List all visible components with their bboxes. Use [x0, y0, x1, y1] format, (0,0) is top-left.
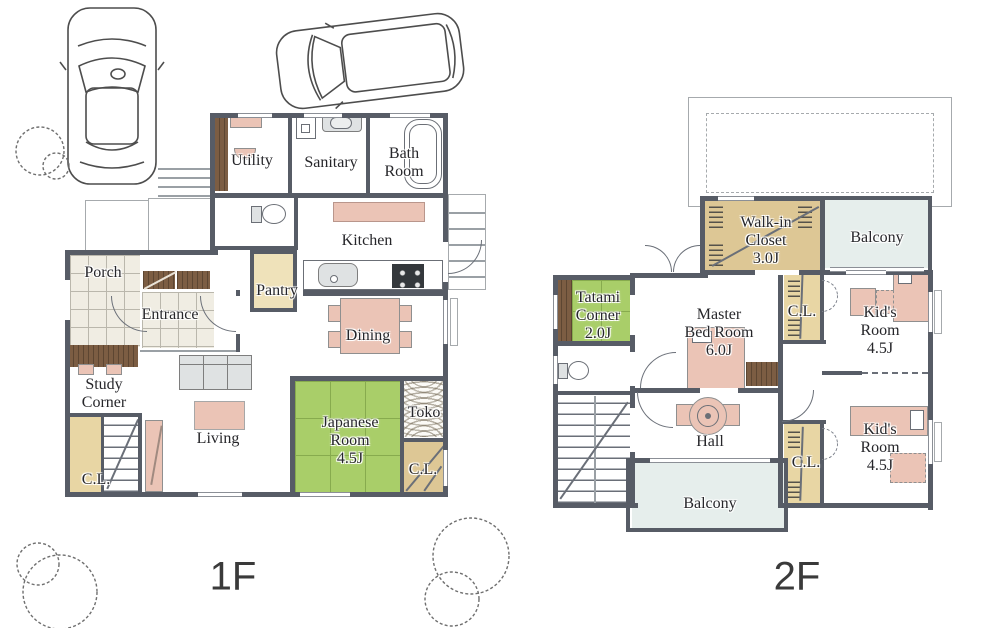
shoe-cabinet [177, 271, 210, 289]
wall-segment [825, 196, 932, 200]
folding-door-arc [822, 444, 838, 460]
room-label-sanitary: Sanitary [304, 154, 357, 172]
dining-chair [399, 331, 412, 348]
room-label-hall: Hall [696, 433, 724, 451]
window [928, 292, 933, 332]
room-label-walk-in-closet: Walk-in Closet 3.0J [740, 214, 791, 268]
window-shutter-box [934, 422, 942, 462]
step-line [158, 186, 215, 188]
wall-segment [250, 308, 297, 312]
step-line [158, 177, 215, 179]
door-opening [236, 296, 240, 334]
wall-segment [303, 290, 443, 296]
window [198, 492, 242, 497]
step-line [158, 168, 215, 170]
floor-step-line [140, 350, 238, 352]
door-opening [630, 295, 635, 335]
bed-pillow [898, 274, 912, 284]
room-label-dining: Dining [346, 327, 390, 345]
wall-segment [783, 503, 933, 508]
door-arc [782, 390, 814, 422]
tatami-corner-shelf [556, 280, 572, 341]
wall-segment [210, 113, 215, 255]
stove-icon [392, 264, 424, 288]
wall-segment [366, 113, 370, 198]
sanitary-cabinet-knob [301, 124, 310, 133]
window [553, 295, 558, 329]
room-label-balcony-bottom: Balcony [683, 495, 736, 513]
wall-segment [553, 391, 633, 395]
room-label-closet-right: C.L. [409, 461, 437, 479]
room-label-balcony-top: Balcony [850, 229, 903, 247]
step-line [158, 195, 215, 197]
floor-2-label: 2F [774, 555, 821, 600]
window [846, 270, 886, 275]
balcony-window [650, 458, 770, 463]
window [304, 113, 342, 118]
window [928, 420, 933, 464]
wall-segment [553, 275, 633, 280]
living-rug [194, 401, 245, 430]
door-arc [640, 352, 676, 388]
room-label-closet-lower: C.L. [792, 454, 820, 472]
wall-segment [778, 270, 783, 392]
door-arc [645, 245, 672, 272]
wall-segment [290, 376, 295, 497]
hanger-pipe-icon [788, 478, 800, 498]
wall-segment [290, 376, 448, 381]
utility-shelf [214, 117, 228, 191]
step-line [449, 228, 485, 230]
hanger-pipe-icon [788, 428, 800, 448]
hall-round-table-dot [705, 413, 711, 419]
kitchen-mat [333, 202, 425, 222]
floor-2-plan: Walk-in Closet 3.0J Balcony Tatami Corne… [500, 0, 1000, 628]
wall-segment [630, 273, 708, 278]
window [443, 450, 448, 486]
toilet-icon [251, 206, 262, 223]
wall-segment [294, 193, 298, 250]
room-label-study-corner: Study Corner [82, 376, 126, 412]
door-arc [637, 392, 673, 428]
balcony-rail [784, 458, 788, 532]
floor-1-label: 1F [210, 555, 257, 600]
wall-segment [65, 250, 218, 255]
room-label-closet-upper: C.L. [788, 303, 816, 321]
kitchen-sink [318, 263, 358, 287]
window [300, 492, 350, 497]
hanger-pipe-icon [709, 204, 723, 228]
wall-segment [700, 196, 705, 275]
folding-door-arc [822, 280, 838, 296]
dining-chair [328, 331, 341, 348]
dresser [746, 362, 782, 386]
room-label-pantry: Pantry [256, 282, 298, 300]
room-label-kids-room-lower: Kid's Room 4.5J [860, 421, 899, 475]
room-label-kids-room-upper: Kid's Room 4.5J [860, 304, 899, 358]
wall-segment [250, 250, 297, 254]
door-arc [673, 245, 700, 272]
room-label-utility: Utility [231, 152, 273, 170]
wash-basin-bowl [330, 117, 352, 129]
dining-chair [399, 305, 412, 322]
room-label-kitchen: Kitchen [342, 232, 393, 250]
window [238, 113, 272, 118]
window-shutter-box [450, 298, 458, 346]
door-opening [755, 270, 799, 275]
bed-pillow [910, 410, 924, 430]
room-label-entrance: Entrance [142, 306, 199, 324]
room-label-toko: Toko [408, 404, 441, 422]
toilet-icon [558, 363, 568, 379]
window [553, 356, 558, 384]
hanger-pipe-icon [788, 277, 800, 297]
roof-dashed-line [706, 113, 934, 193]
room-label-japanese-room: Japanese Room 4.5J [322, 414, 379, 468]
balcony-rail [626, 458, 630, 532]
folding-door-arc [822, 296, 838, 312]
wall-segment [778, 340, 826, 344]
wall-segment [822, 371, 862, 375]
room-label-closet-left: C.L. [82, 471, 110, 489]
door-opening [700, 388, 738, 393]
wall-segment [65, 492, 448, 497]
step-line [449, 212, 485, 214]
room-label-tatami-corner: Tatami Corner 2.0J [576, 289, 620, 343]
window [390, 113, 430, 118]
toilet-icon [568, 361, 589, 380]
window [443, 300, 448, 344]
window [718, 196, 754, 201]
room-label-porch: Porch [84, 264, 121, 282]
door-opening [630, 408, 635, 452]
approach-steps [148, 198, 215, 252]
wall-segment [293, 250, 297, 312]
wall-segment [400, 438, 448, 442]
room-label-bath-room: Bath Room [384, 145, 423, 181]
door-opening [65, 280, 70, 320]
wall-segment [928, 196, 932, 272]
folding-door-arc [822, 428, 838, 444]
room-label-living: Living [197, 430, 240, 448]
dining-chair [328, 305, 341, 322]
study-chair [106, 364, 122, 375]
balcony-rail [626, 528, 788, 532]
room-label-master-bed-room: Master Bed Room 6.0J [685, 306, 754, 360]
sofa [179, 355, 252, 390]
wall-segment [778, 420, 783, 508]
sliding-partition [862, 372, 928, 374]
kitchen-sink-drain [330, 275, 338, 283]
study-chair [78, 364, 94, 375]
window-shutter-box [934, 290, 942, 334]
wall-segment [250, 250, 254, 312]
wall-segment [820, 196, 825, 275]
door-opening [630, 352, 635, 386]
wall-segment [138, 413, 142, 497]
step-line [449, 276, 485, 278]
wall-segment [288, 113, 292, 198]
toilet-icon [262, 204, 286, 224]
floor-plan-canvas: Utility Sanitary Bath Room Kitchen Porch… [0, 0, 1000, 628]
wall-segment [210, 193, 448, 198]
dining-table [340, 298, 400, 354]
floor-1-plan: Utility Sanitary Bath Room Kitchen Porch… [0, 0, 500, 628]
